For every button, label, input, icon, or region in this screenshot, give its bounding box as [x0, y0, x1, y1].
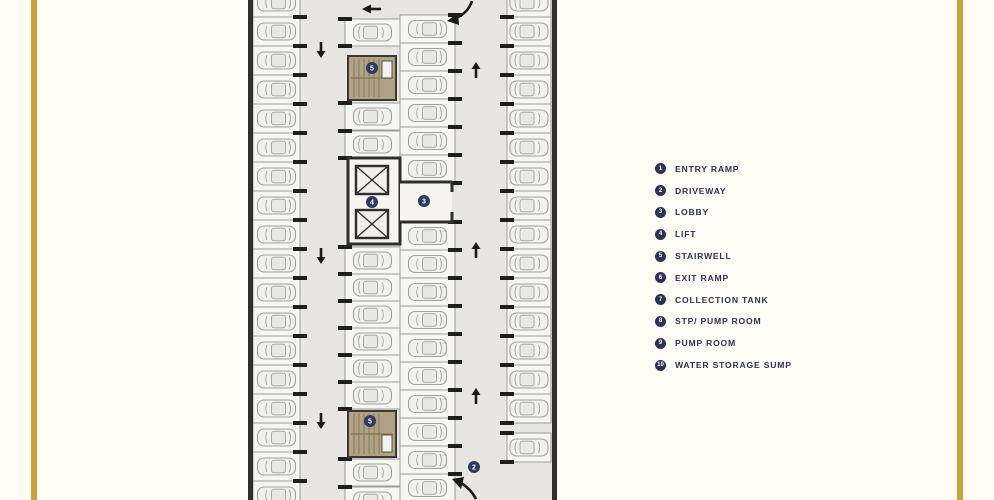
- car-icon: [354, 108, 392, 125]
- car-icon: [409, 161, 447, 178]
- driveway-marker-number: 2: [472, 464, 476, 471]
- stall-tick: [448, 69, 462, 73]
- car-icon: [510, 168, 548, 185]
- legend-item: 3 LOBBY: [655, 202, 885, 224]
- legend-item: 2 DRIVEWAY: [655, 180, 885, 202]
- stall-tick: [448, 416, 462, 420]
- right-accent-bar: [957, 0, 963, 500]
- car-icon: [409, 49, 447, 66]
- stall-tick: [293, 102, 307, 106]
- legend-number-badge: 2: [655, 185, 666, 196]
- stall-tick: [293, 44, 307, 48]
- stall-tick: [500, 363, 514, 367]
- stall-tick: [500, 421, 514, 425]
- car-icon: [510, 400, 548, 417]
- car-icon: [258, 458, 296, 475]
- legend-item-label: WATER STORAGE SUMP: [675, 360, 792, 370]
- stall-tick: [448, 248, 462, 252]
- car-icon: [510, 23, 548, 40]
- stall-tick: [293, 392, 307, 396]
- car-icon: [354, 306, 392, 323]
- car-icon: [354, 24, 392, 41]
- stall-tick: [448, 97, 462, 101]
- car-icon: [258, 371, 296, 388]
- car-icon: [258, 400, 296, 417]
- stall-tick: [448, 276, 462, 280]
- car-icon: [409, 256, 447, 273]
- legend-number-badge: 3: [655, 207, 666, 218]
- stall-tick: [448, 153, 462, 157]
- stall-tick: [500, 431, 514, 435]
- car-icon: [258, 429, 296, 446]
- stall-tick: [500, 460, 514, 464]
- car-icon: [409, 133, 447, 150]
- left-wall: [248, 0, 253, 500]
- legend-item: 9 PUMP ROOM: [655, 332, 885, 354]
- stall-tick: [293, 334, 307, 338]
- car-icon: [354, 136, 392, 153]
- legend-item: 1 ENTRY RAMP: [655, 158, 885, 180]
- left-accent-bar: [31, 0, 37, 500]
- legend-item: 7 COLLECTION TANK: [655, 289, 885, 311]
- floor-plan-drawing: 54352: [248, 0, 557, 500]
- car-icon: [409, 105, 447, 122]
- car-icon: [354, 252, 392, 269]
- legend: 1 ENTRY RAMP 2 DRIVEWAY 3 LOBBY 4 LIFT 5…: [655, 158, 885, 376]
- legend-item: 6 EXIT RAMP: [655, 267, 885, 289]
- car-icon: [409, 452, 447, 469]
- legend-number-badge: 6: [655, 272, 666, 283]
- car-icon: [409, 77, 447, 94]
- legend-item-label: ENTRY RAMP: [675, 164, 739, 174]
- legend-item: 4 LIFT: [655, 223, 885, 245]
- stairwell-top-marker-number: 5: [370, 65, 374, 72]
- legend-number-badge: 7: [655, 294, 666, 305]
- stall-tick: [293, 421, 307, 425]
- stall-tick: [338, 380, 352, 384]
- car-icon: [510, 313, 548, 330]
- stall-tick: [338, 17, 352, 21]
- stall-tick: [448, 125, 462, 129]
- stall-tick: [293, 276, 307, 280]
- car-icon: [510, 197, 548, 214]
- stall-tick: [500, 44, 514, 48]
- car-icon: [258, 81, 296, 98]
- car-icon: [258, 139, 296, 156]
- stall-tick: [338, 326, 352, 330]
- stall-tick: [293, 218, 307, 222]
- car-icon: [258, 168, 296, 185]
- legend-number-badge: 9: [655, 338, 666, 349]
- car-icon: [354, 492, 392, 500]
- car-icon: [510, 52, 548, 69]
- stall-tick: [448, 388, 462, 392]
- car-icon: [354, 387, 392, 404]
- stall-tick: [293, 15, 307, 19]
- car-icon: [354, 279, 392, 296]
- legend-item: 8 STP/ PUMP ROOM: [655, 311, 885, 333]
- car-icon: [258, 197, 296, 214]
- car-icon: [258, 23, 296, 40]
- legend-number-badge: 8: [655, 316, 666, 327]
- legend-item-label: COLLECTION TANK: [675, 295, 768, 305]
- stall-tick: [338, 44, 352, 48]
- car-icon: [510, 439, 548, 456]
- car-icon: [409, 368, 447, 385]
- car-icon: [258, 313, 296, 330]
- car-icon: [258, 226, 296, 243]
- stall-tick: [293, 247, 307, 251]
- legend-item-label: DRIVEWAY: [675, 186, 726, 196]
- stall-tick: [500, 305, 514, 309]
- stall-tick: [293, 189, 307, 193]
- car-icon: [409, 340, 447, 357]
- legend-item-label: LOBBY: [675, 207, 709, 217]
- stall-tick: [293, 160, 307, 164]
- stall-tick: [293, 131, 307, 135]
- car-icon: [258, 0, 296, 11]
- car-icon: [510, 226, 548, 243]
- stall-tick: [448, 304, 462, 308]
- lobby-marker-number: 3: [422, 198, 426, 205]
- stall-tick: [338, 485, 352, 489]
- lift-marker-number: 4: [370, 199, 374, 206]
- legend-item-label: EXIT RAMP: [675, 273, 729, 283]
- car-icon: [510, 255, 548, 272]
- stall-tick: [448, 41, 462, 45]
- stall-tick: [500, 247, 514, 251]
- stall-tick: [500, 15, 514, 19]
- legend-item-label: LIFT: [675, 229, 696, 239]
- legend-number-badge: 5: [655, 251, 666, 262]
- stall-tick: [338, 353, 352, 357]
- car-icon: [510, 81, 548, 98]
- car-icon: [510, 371, 548, 388]
- car-icon: [510, 0, 548, 11]
- car-icon: [258, 52, 296, 69]
- car-icon: [409, 284, 447, 301]
- stall-tick: [338, 245, 352, 249]
- stall-tick: [293, 73, 307, 77]
- stall-tick: [500, 218, 514, 222]
- stall-tick: [293, 479, 307, 483]
- floor-plan: 54352: [248, 0, 557, 500]
- car-icon: [409, 424, 447, 441]
- car-icon: [258, 110, 296, 127]
- stall-tick: [448, 332, 462, 336]
- stall-tick: [500, 73, 514, 77]
- stall-tick: [500, 392, 514, 396]
- car-icon: [409, 228, 447, 245]
- car-icon: [258, 284, 296, 301]
- stall-tick: [448, 360, 462, 364]
- stall-tick: [293, 363, 307, 367]
- car-icon: [258, 487, 296, 500]
- stall-tick: [500, 160, 514, 164]
- car-icon: [510, 110, 548, 127]
- car-icon: [409, 312, 447, 329]
- car-icon: [354, 333, 392, 350]
- car-icon: [510, 139, 548, 156]
- stall-tick: [293, 450, 307, 454]
- stall-tick: [293, 305, 307, 309]
- legend-item-label: STAIRWELL: [675, 251, 732, 261]
- stall-tick: [500, 189, 514, 193]
- car-icon: [409, 21, 447, 38]
- stall-tick: [500, 334, 514, 338]
- car-icon: [258, 255, 296, 272]
- legend-number-badge: 1: [655, 163, 666, 174]
- stall-tick: [448, 444, 462, 448]
- legend-item-label: STP/ PUMP ROOM: [675, 316, 761, 326]
- car-icon: [409, 396, 447, 413]
- stairwell-bottom-marker-number: 5: [368, 418, 372, 425]
- stall-tick: [448, 472, 462, 476]
- legend-item: 10 WATER STORAGE SUMP: [655, 354, 885, 376]
- right-wall: [552, 0, 557, 500]
- car-icon: [510, 284, 548, 301]
- car-icon: [409, 480, 447, 497]
- legend-item: 5 STAIRWELL: [655, 245, 885, 267]
- stall-tick: [500, 131, 514, 135]
- stall-tick: [338, 101, 352, 105]
- car-icon: [258, 342, 296, 359]
- car-icon: [354, 464, 392, 481]
- stall-tick: [500, 102, 514, 106]
- page: 54352 1 ENTRY RAMP 2 DRIVEWAY 3 LOBBY 4 …: [0, 0, 994, 500]
- car-icon: [510, 342, 548, 359]
- car-icon: [354, 360, 392, 377]
- stall-tick: [338, 299, 352, 303]
- legend-number-badge: 10: [655, 360, 666, 371]
- stall-tick: [338, 272, 352, 276]
- stall-tick: [338, 129, 352, 133]
- legend-item-label: PUMP ROOM: [675, 338, 736, 348]
- stall-tick: [500, 276, 514, 280]
- legend-number-badge: 4: [655, 229, 666, 240]
